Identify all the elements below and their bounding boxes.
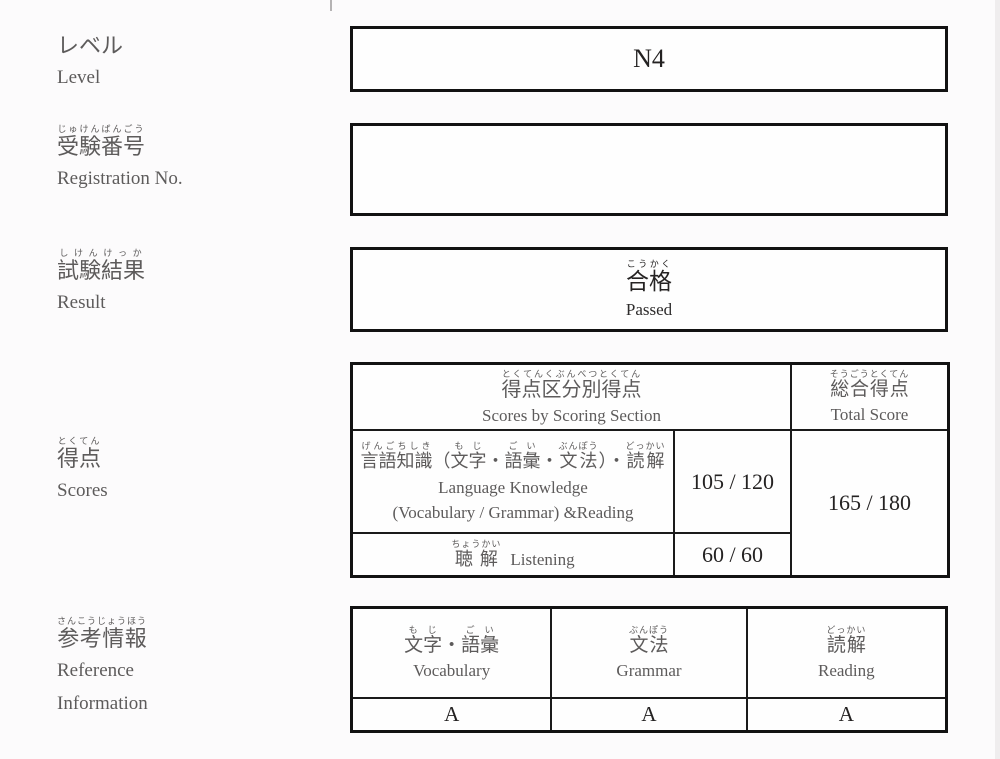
level-label-jp: レベル [57,32,123,60]
language-knowledge-label-en-line1: Language Knowledge [438,478,588,498]
vocabulary-grade-cell: A [353,699,550,730]
reading-header-en: Reading [818,661,875,681]
page-top-divider-mark [330,0,332,11]
total-score-cell: 165 / 180 [792,431,947,575]
listening-label-line: 聴解ちょうかい Listening [451,539,574,571]
reading-header-jp: 読解どっかい [826,625,866,657]
language-knowledge-label-en-line2: (Vocabulary / Grammar) &Reading [393,503,634,523]
registration-label-jp: 受験番号じゅけんばんごう [57,124,183,161]
total-score: 165 / 180 [828,490,911,516]
reference-label-en-line2: Information [57,693,148,716]
registration-label-en: Registration No. [57,168,183,191]
listening-label-jp: 聴解ちょうかい [451,539,501,571]
reading-header-cell: 読解どっかい Reading [748,609,945,699]
level-value-box: N4 [350,26,948,92]
result-label-en: Result [57,292,145,315]
grammar-header-jp: 文法ぶんぽう [629,625,669,657]
result-value-jp: 合格こうかく [626,259,672,296]
reference-table: 文字もじ・語彙ごい Vocabulary 文法ぶんぽう Grammar 読解どっ… [350,606,948,733]
grammar-header-cell: 文法ぶんぽう Grammar [550,609,747,699]
reading-grade: A [839,702,854,727]
grammar-grade: A [641,702,656,727]
language-knowledge-score: 105 / 120 [691,469,774,495]
reference-field-label: 参考情報さんこうじょうほう Reference Information [57,616,148,716]
scores-table: 得点区分別得点とくてんくぶんべつとくてん Scores by Scoring S… [350,362,950,578]
scores-section-header-cell: 得点区分別得点とくてんくぶんべつとくてん Scores by Scoring S… [353,365,792,431]
listening-label-cell: 聴解ちょうかい Listening [353,534,675,575]
vocabulary-grade: A [444,702,459,727]
language-knowledge-score-cell: 105 / 120 [675,431,792,534]
total-score-header-cell: 総合得点そうごうとくてん Total Score [792,365,947,431]
scores-field-label: 得点とくてん Scores [57,436,108,502]
level-label-en: Level [57,67,123,90]
vocabulary-header-en: Vocabulary [413,661,490,681]
scores-section-header-jp: 得点区分別得点とくてんくぶんべつとくてん [502,369,642,402]
registration-field-label: 受験番号じゅけんばんごう Registration No. [57,124,183,190]
vocabulary-header-cell: 文字もじ・語彙ごい Vocabulary [353,609,550,699]
language-knowledge-label-cell: 言語知識げんごちしき（文字もじ・語彙ごい・文法ぶんぽう）・読解どっかい Lang… [353,431,675,534]
scores-label-jp: 得点とくてん [57,436,108,473]
scores-section-header-en: Scores by Scoring Section [482,406,661,426]
grammar-header-en: Grammar [616,661,681,681]
result-field-label: 試験結果しけんけっか Result [57,248,145,314]
level-value: N4 [633,44,665,74]
scores-label-en: Scores [57,480,108,503]
vocabulary-header-jp: 文字もじ・語彙ごい [404,625,499,657]
grammar-grade-cell: A [550,699,747,730]
reference-label-jp: 参考情報さんこうじょうほう [57,616,148,653]
total-score-header-en: Total Score [831,405,909,425]
language-knowledge-label-jp: 言語知識げんごちしき（文字もじ・語彙ごい・文法ぶんぽう）・読解どっかい [360,441,665,473]
jlpt-result-page: レベル Level N4 受験番号じゅけんばんごう Registration N… [0,0,1000,759]
reading-grade-cell: A [748,699,945,730]
listening-score: 60 / 60 [702,542,763,568]
reference-label-en-line1: Reference [57,660,148,683]
listening-score-cell: 60 / 60 [675,534,792,575]
listening-label-en: Listening [510,550,574,570]
registration-value-box [350,123,948,216]
result-value-en: Passed [626,300,672,320]
page-right-edge [995,0,1000,759]
result-value-box: 合格こうかく Passed [350,247,948,332]
total-score-header-jp: 総合得点そうごうとくてん [830,369,909,401]
level-field-label: レベル Level [57,32,123,89]
result-label-jp: 試験結果しけんけっか [57,248,145,285]
